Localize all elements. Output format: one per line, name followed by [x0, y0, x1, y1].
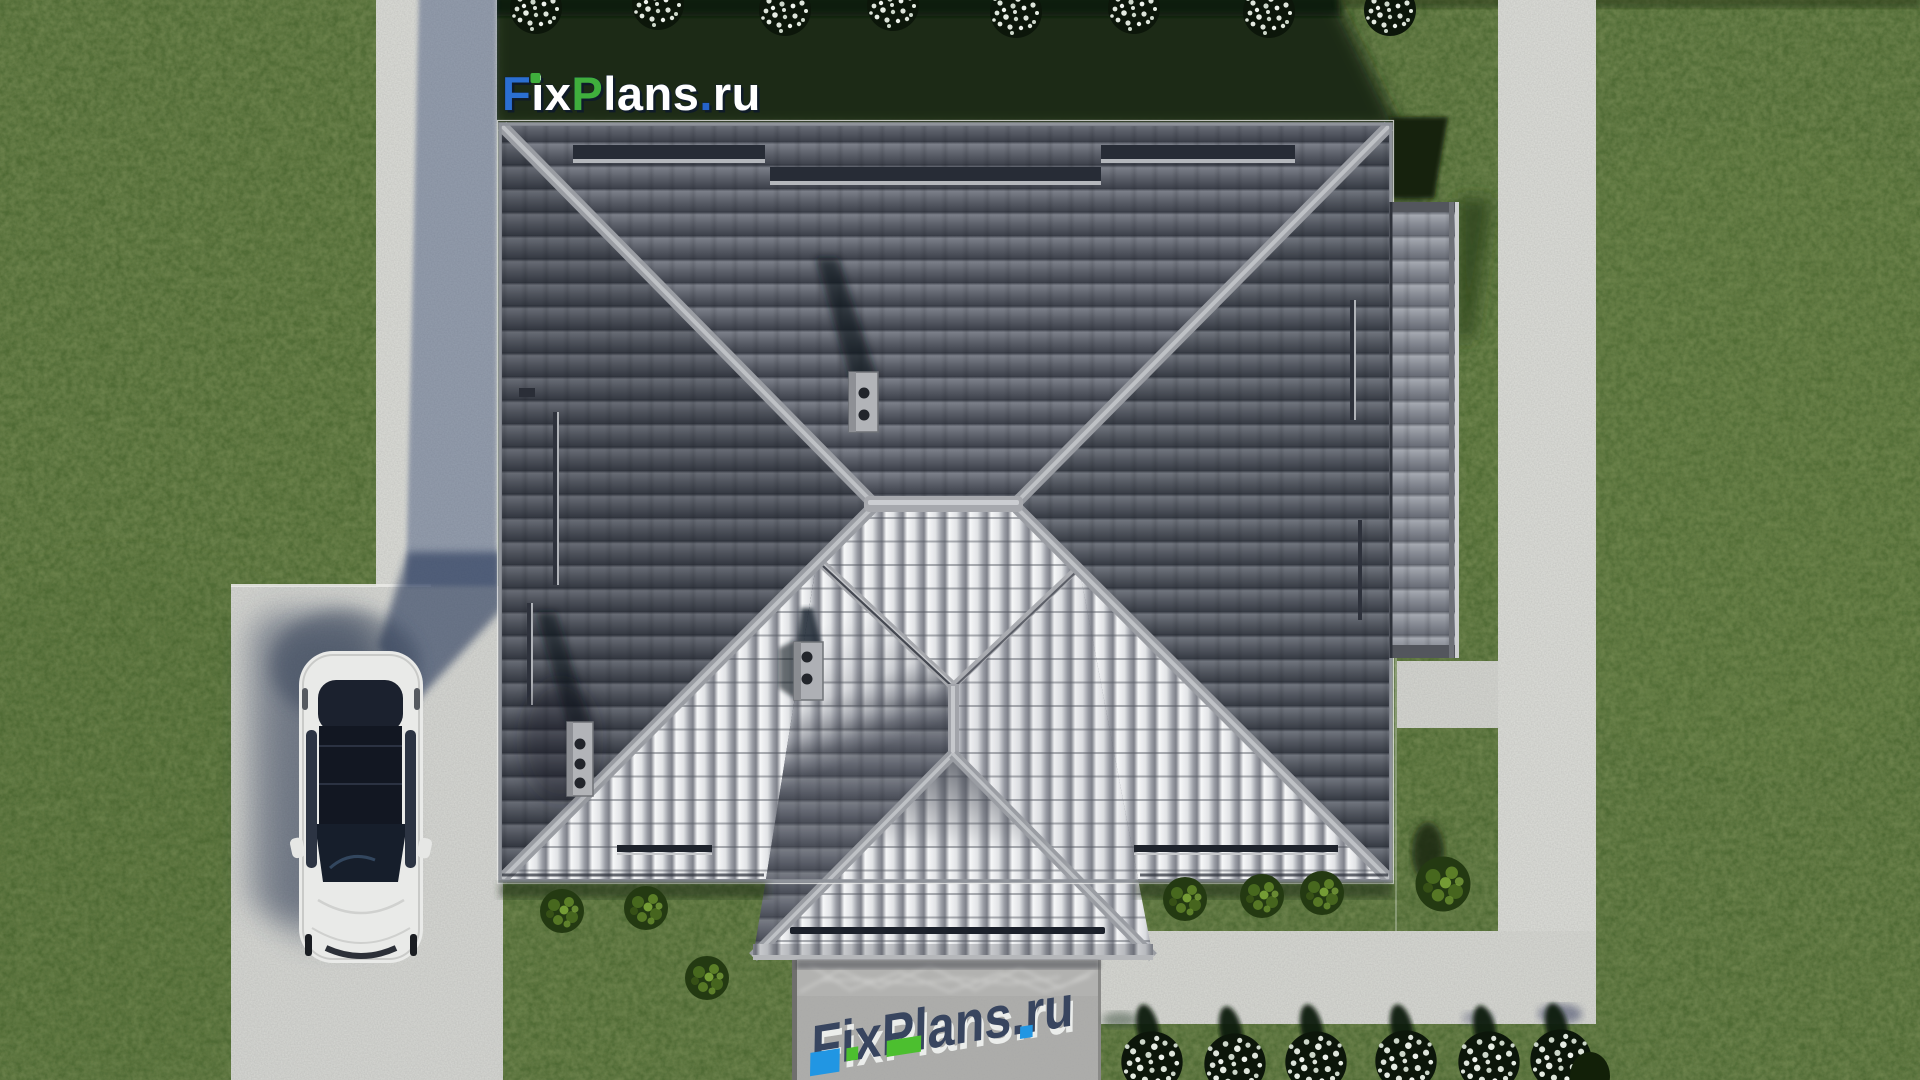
svg-text:FixPlans.ru: FixPlans.ru [502, 67, 761, 120]
